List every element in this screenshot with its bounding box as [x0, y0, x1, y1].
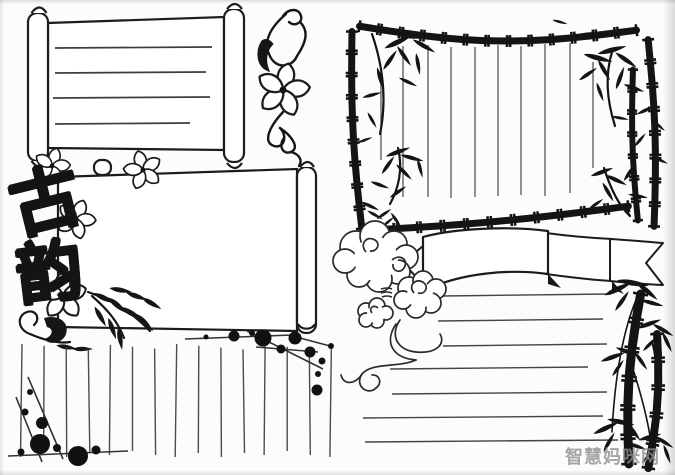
bamboo-segment	[491, 220, 511, 222]
cloud-tail	[341, 320, 442, 391]
bamboo-node	[642, 39, 654, 40]
roller-cap	[300, 162, 314, 167]
scroll-roller-right	[224, 9, 244, 162]
frame-writing-lines	[381, 43, 593, 198]
cloud-small	[358, 298, 393, 328]
bamboo-node	[647, 87, 659, 88]
bamboo-node	[561, 209, 562, 221]
writing-line	[109, 345, 110, 455]
bamboo-node	[359, 20, 361, 32]
bamboo-node	[649, 416, 662, 418]
bamboo-segment	[553, 38, 572, 40]
bamboo-segment	[421, 226, 441, 227]
bamboo-node	[628, 157, 638, 158]
bamboo-frame-border	[346, 19, 669, 236]
title-char-2: 韵	[12, 236, 86, 310]
writing-line	[264, 345, 265, 455]
scroll-roller-right	[297, 167, 316, 333]
bamboo-segment	[360, 26, 378, 29]
bamboo-leaf	[552, 19, 568, 26]
bamboo-node	[650, 334, 664, 335]
writing-line	[66, 348, 67, 457]
vine-curl	[291, 152, 301, 166]
bamboo-segment	[636, 294, 640, 319]
bamboo-segment	[650, 63, 652, 83]
writing-line	[443, 344, 607, 346]
horizontal-writing-lines	[363, 294, 618, 442]
bamboo-segment	[561, 212, 581, 214]
writing-line	[55, 47, 212, 48]
berry-dot	[22, 409, 29, 416]
berry-dot	[36, 417, 48, 429]
bamboo-node	[645, 63, 657, 64]
bamboo-segment	[397, 227, 417, 228]
vertical-writing-lines	[21, 344, 332, 457]
bamboo-segment	[355, 165, 357, 184]
writing-line	[198, 346, 199, 453]
bamboo-leaf	[395, 163, 413, 181]
writing-line	[55, 123, 190, 124]
bamboo-leaf	[614, 66, 626, 90]
berry-dot	[30, 434, 50, 454]
bamboo-segment	[354, 143, 355, 162]
bamboo-leaf	[75, 348, 89, 350]
bamboo-node	[444, 220, 445, 232]
bamboo-node	[351, 187, 363, 188]
bamboo-node	[491, 216, 492, 228]
bamboo-segment	[618, 30, 637, 32]
scroll-roller-left	[28, 13, 48, 161]
vine-curl	[283, 10, 301, 24]
berry-dot	[204, 335, 209, 340]
bamboo-leaf	[380, 155, 396, 175]
roller-cap	[227, 163, 242, 168]
bamboo-segment	[652, 87, 653, 107]
bamboo-leaf	[614, 51, 638, 70]
bamboo-leaf	[595, 82, 605, 102]
bamboo-node	[420, 221, 421, 233]
template-drawing	[0, 0, 675, 475]
bamboo-leaf	[662, 444, 672, 464]
roller-cap-stub	[94, 160, 111, 175]
writing-line	[365, 440, 618, 442]
bamboo-node	[531, 35, 532, 47]
berry-dot	[289, 332, 302, 345]
bamboo-segment	[538, 215, 558, 217]
writing-line	[363, 416, 603, 418]
bamboo-leaf	[578, 66, 598, 82]
bamboo-node	[445, 32, 446, 44]
bamboo-node	[633, 220, 643, 221]
writing-line	[55, 72, 206, 73]
berry-dot	[255, 330, 272, 347]
bamboo-leaf	[414, 53, 422, 75]
writing-line	[390, 367, 588, 369]
scanned-template-photo: 古 韵 智慧妈咪网	[0, 0, 675, 475]
bamboo-node	[628, 322, 643, 324]
vine-curl	[267, 14, 297, 66]
writing-line	[21, 344, 23, 457]
bamboo-segment	[352, 98, 353, 117]
scroll-panel	[48, 17, 224, 150]
writing-line	[330, 344, 332, 457]
berry-branch-top	[185, 330, 334, 396]
writing-line	[243, 349, 245, 453]
bamboo-segment	[654, 206, 655, 226]
bamboo-node	[380, 24, 382, 36]
bamboo-node	[631, 201, 641, 202]
berry-dot	[305, 347, 316, 358]
branch-line	[300, 338, 330, 346]
bamboo-node	[617, 27, 619, 39]
bamboo-leaf	[395, 45, 412, 67]
writing-line	[221, 348, 222, 457]
bamboo-node	[467, 34, 468, 46]
bamboo-node	[636, 24, 638, 36]
bamboo-node	[629, 179, 639, 180]
berry-dot	[328, 343, 334, 349]
berry-dot	[312, 385, 323, 396]
bamboo-segment	[636, 202, 638, 221]
bamboo-segment	[657, 334, 658, 358]
bamboo-leaf	[366, 111, 378, 128]
bamboo-segment	[467, 40, 486, 41]
bamboo-node	[349, 165, 361, 166]
bamboo-leaf	[370, 180, 390, 190]
bamboo-node	[347, 120, 359, 121]
writing-line	[438, 319, 603, 321]
bamboo-node	[514, 214, 515, 226]
roller-cap	[32, 8, 47, 14]
writing-line	[88, 349, 90, 453]
right-page	[333, 19, 674, 470]
berry-dot	[315, 371, 321, 377]
ribbon-middle-segment	[546, 233, 612, 281]
bamboo-node	[607, 203, 609, 215]
second-scroll-banner	[58, 160, 316, 333]
berry-dot	[27, 389, 33, 395]
bamboo-node	[620, 439, 635, 440]
bamboo-segment	[585, 209, 605, 212]
bamboo-leaf	[362, 91, 382, 99]
bamboo-stalk-curve	[608, 52, 615, 126]
bamboo-segment	[444, 224, 464, 225]
berry-dot	[53, 444, 61, 452]
berry-dot	[277, 345, 286, 354]
bamboo-segment	[446, 38, 465, 40]
vine-curl	[20, 311, 38, 334]
vine-curl	[297, 22, 306, 56]
writing-line	[53, 97, 210, 98]
bamboo-segment	[357, 187, 359, 206]
bamboo-node	[467, 218, 468, 230]
bamboo-leaf	[613, 290, 630, 312]
bamboo-segment	[629, 352, 631, 377]
bamboo-segment	[648, 40, 650, 60]
bamboo-segment	[515, 218, 535, 220]
bamboo-leaf	[633, 351, 649, 371]
berry-dot	[249, 330, 255, 336]
bamboo-node	[648, 111, 660, 112]
bamboo-segment	[628, 381, 629, 406]
ribbon-tail	[610, 239, 663, 285]
bamboo-leaf	[381, 49, 398, 71]
bamboo-node	[584, 206, 585, 218]
writing-line	[309, 349, 310, 456]
bamboo-node	[354, 209, 366, 210]
bamboo-segment	[632, 136, 633, 155]
writing-line	[175, 344, 177, 457]
bamboo-leaf	[398, 76, 418, 88]
berry-dot	[92, 446, 101, 455]
bamboo-segment	[468, 222, 488, 224]
bamboo-segment	[532, 40, 551, 41]
bamboo-segment	[353, 121, 354, 140]
writing-line	[442, 294, 611, 296]
bamboo-node	[651, 389, 665, 390]
bamboo-segment	[575, 36, 594, 38]
berry-dot	[229, 331, 240, 342]
bamboo-segment	[381, 30, 399, 33]
bamboo-node	[574, 32, 575, 44]
bamboo-node	[621, 380, 636, 381]
bamboo-node	[537, 211, 538, 223]
berry-dot	[18, 449, 25, 456]
bamboo-segment	[596, 33, 615, 35]
berry-dot	[319, 358, 326, 365]
bamboo-segment	[657, 389, 659, 413]
bamboo-leaf	[376, 208, 392, 221]
roller-cap	[227, 4, 242, 9]
bamboo-node	[596, 29, 597, 41]
bamboo-node	[423, 30, 424, 42]
scroll-panel	[58, 169, 297, 331]
bamboo-segment	[632, 323, 636, 348]
writing-line	[392, 392, 607, 394]
writing-line	[155, 349, 156, 456]
watermark: 智慧妈咪网	[565, 443, 660, 469]
bamboo-node	[553, 33, 554, 45]
berry-dot	[68, 446, 88, 466]
top-scroll-banner	[28, 4, 244, 168]
